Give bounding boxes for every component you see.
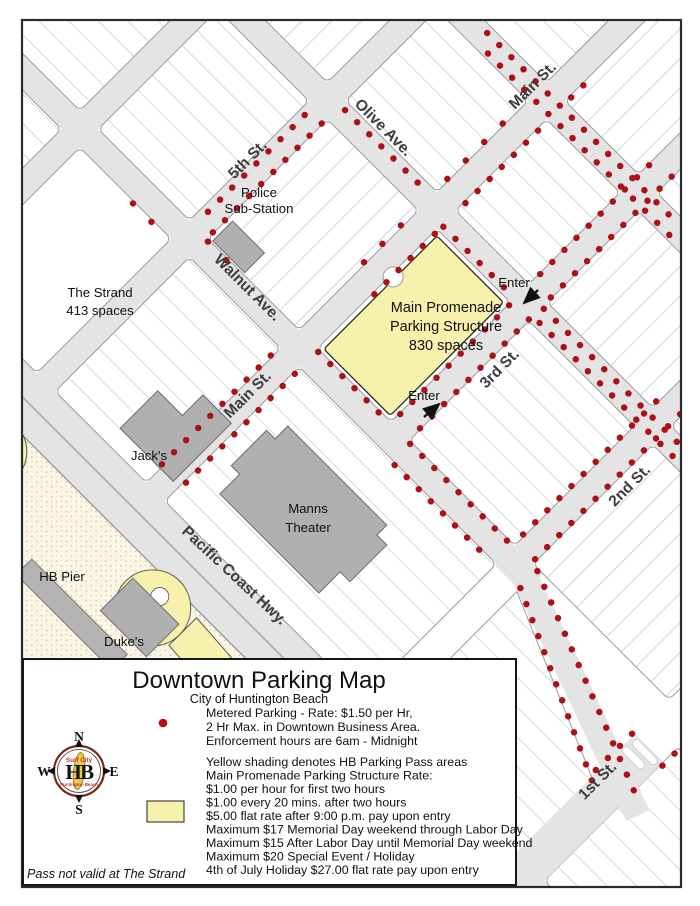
pass-rule-4: $1.00 every 20 mins. after two hours [206, 796, 406, 810]
metered-line-2: 2 Hr Max. in Downtown Business Area. [206, 720, 420, 734]
pass-rule-7: Maximum $15 After Labor Day until Memori… [206, 836, 533, 850]
pass-rule-9: 4th of July Holiday $27.00 flat rate pay… [206, 863, 480, 877]
pass-rule-1: Yellow shading denotes HB Parking Pass a… [206, 755, 467, 769]
pass-note: Pass not valid at The Strand [27, 867, 186, 881]
meter-dot-legend-symbol [159, 719, 168, 728]
enter-label-north: Enter [498, 275, 530, 290]
legend-subtitle: City of Huntington Beach [190, 692, 328, 706]
compass-letter-w: W [37, 764, 51, 779]
promenade-label-line1: Main Promenade [391, 300, 501, 316]
compass-hb-text: HB [65, 760, 94, 784]
compass-letter-n: N [74, 729, 84, 744]
dukes-label: Duke's [104, 634, 144, 649]
yellow-shading-legend-swatch [147, 801, 184, 822]
jacks-label: Jack's [131, 448, 168, 463]
police-label-line1: Police [241, 185, 277, 200]
strand-label-name: The Strand [67, 285, 132, 300]
compass-city-text: Huntington Beach [60, 782, 98, 787]
enter-label-south: Enter [408, 388, 440, 403]
promenade-label-line3: 830 spaces [409, 338, 483, 354]
compass-letter-s: S [75, 802, 83, 817]
metered-line-1: Metered Parking - Rate: $1.50 per Hr, [206, 706, 413, 720]
pass-rule-3: $1.00 per hour for first two hours [206, 782, 385, 796]
police-label-line2: Sub-Station [225, 201, 294, 216]
legend: Downtown Parking Map City of Huntington … [23, 659, 533, 885]
metered-line-3: Enforcement hours are 6am - Midnight [206, 734, 418, 748]
promenade-label-line2: Parking Structure [390, 319, 502, 335]
hb-pier-label: HB Pier [39, 569, 85, 584]
strand-label-spaces: 413 spaces [66, 303, 134, 318]
downtown-parking-map: 5th St. Olive Ave. Main St. Walnut Ave. … [0, 0, 700, 906]
legend-title: Downtown Parking Map [132, 667, 385, 694]
pass-rule-6: Maximum $17 Memorial Day weekend through… [206, 823, 524, 837]
compass-letter-e: E [109, 764, 118, 779]
manns-label-line1: Manns [288, 501, 328, 516]
manns-label-line2: Theater [285, 520, 331, 535]
pass-rule-5: $5.00 flat rate after 9:00 p.m. pay upon… [206, 809, 451, 823]
pass-rule-2: Main Promenade Parking Structure Rate: [206, 769, 433, 783]
pass-rule-8: Maximum $20 Special Event / Holiday [206, 850, 415, 864]
